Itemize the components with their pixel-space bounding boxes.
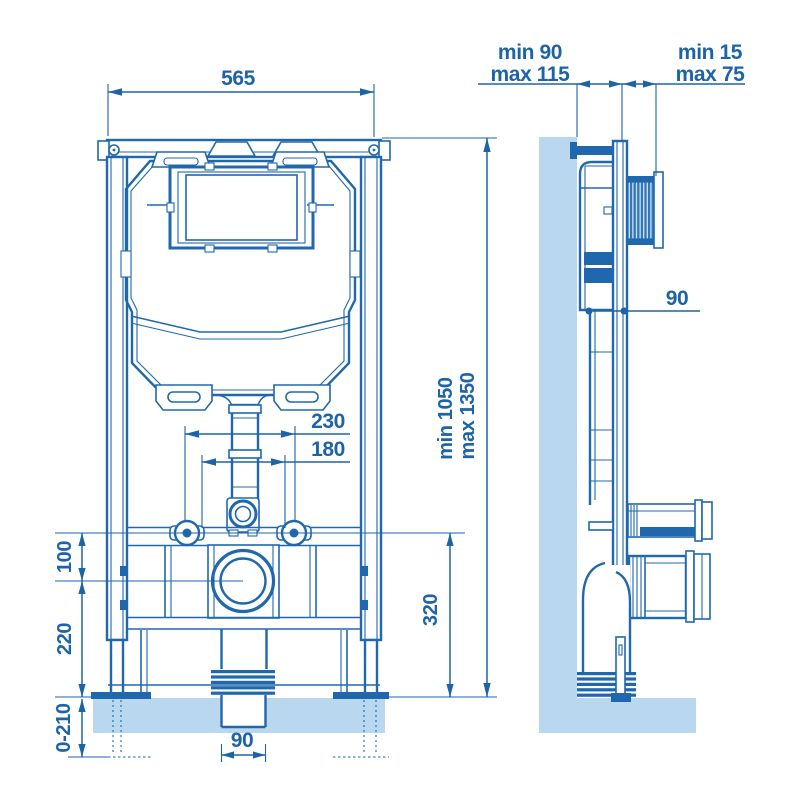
dim-bolt-spacing: 230 [185,410,350,520]
label-frame-height: min 1050 max 1350 [435,372,479,460]
dim-depths-top: min 90 max 115 min 15 max 75 [478,41,745,176]
cistern-side [580,162,613,310]
foot-right [365,640,377,694]
waste-connector-side [629,551,710,622]
label-inner-spacing: 180 [311,438,345,461]
label-plate-min: min 15 [678,41,743,64]
cistern-front [121,152,360,412]
label-cistern-depth: 90 [666,287,689,310]
label-frame-width: 565 [221,67,256,90]
label-feet-range: 0-210 [53,703,75,752]
floor-side [539,698,696,733]
label-waste-width: 90 [231,729,254,752]
label-bolt-to-outlet: 100 [54,541,76,573]
drawing-canvas: 565 min 1050 max 1350 230 [0,0,800,800]
foot-left [111,640,123,694]
installation-drawing: 565 min 1050 max 1350 230 [0,0,800,800]
wall-bracket [577,146,613,155]
label-height-min: min 1050 [435,377,457,460]
frame-rail-side [613,141,627,637]
label-bolt-spacing: 230 [311,410,345,433]
wall [539,137,577,698]
label-height-max: max 1350 [457,372,479,459]
dim-frame-width: 565 [108,67,374,137]
front-view [91,140,390,757]
wall-bracket-bolt [570,142,577,159]
side-view [539,137,712,733]
label-depth-max: max 115 [491,63,571,86]
dim-fixing-height: 320 [420,533,454,697]
label-outlet-height: 220 [54,623,76,655]
dim-inner-spacing: 180 [202,438,350,528]
access-box-side [624,172,663,248]
fixing-rod-side [628,500,712,541]
dim-waste-width: 90 [222,729,266,762]
label-fixing-height: 320 [420,594,442,626]
waste-pipe [211,629,275,727]
label-depth-min: min 90 [498,41,562,64]
lower-frame [127,521,361,692]
flush-pipe [227,405,261,536]
dim-frame-height: min 1050 max 1350 [335,138,497,697]
drain-elbow-side [577,563,636,697]
foot-side [611,637,631,702]
flush-pipe-side [589,310,613,530]
access-window [167,163,316,252]
label-plate-max: max 75 [676,63,746,86]
